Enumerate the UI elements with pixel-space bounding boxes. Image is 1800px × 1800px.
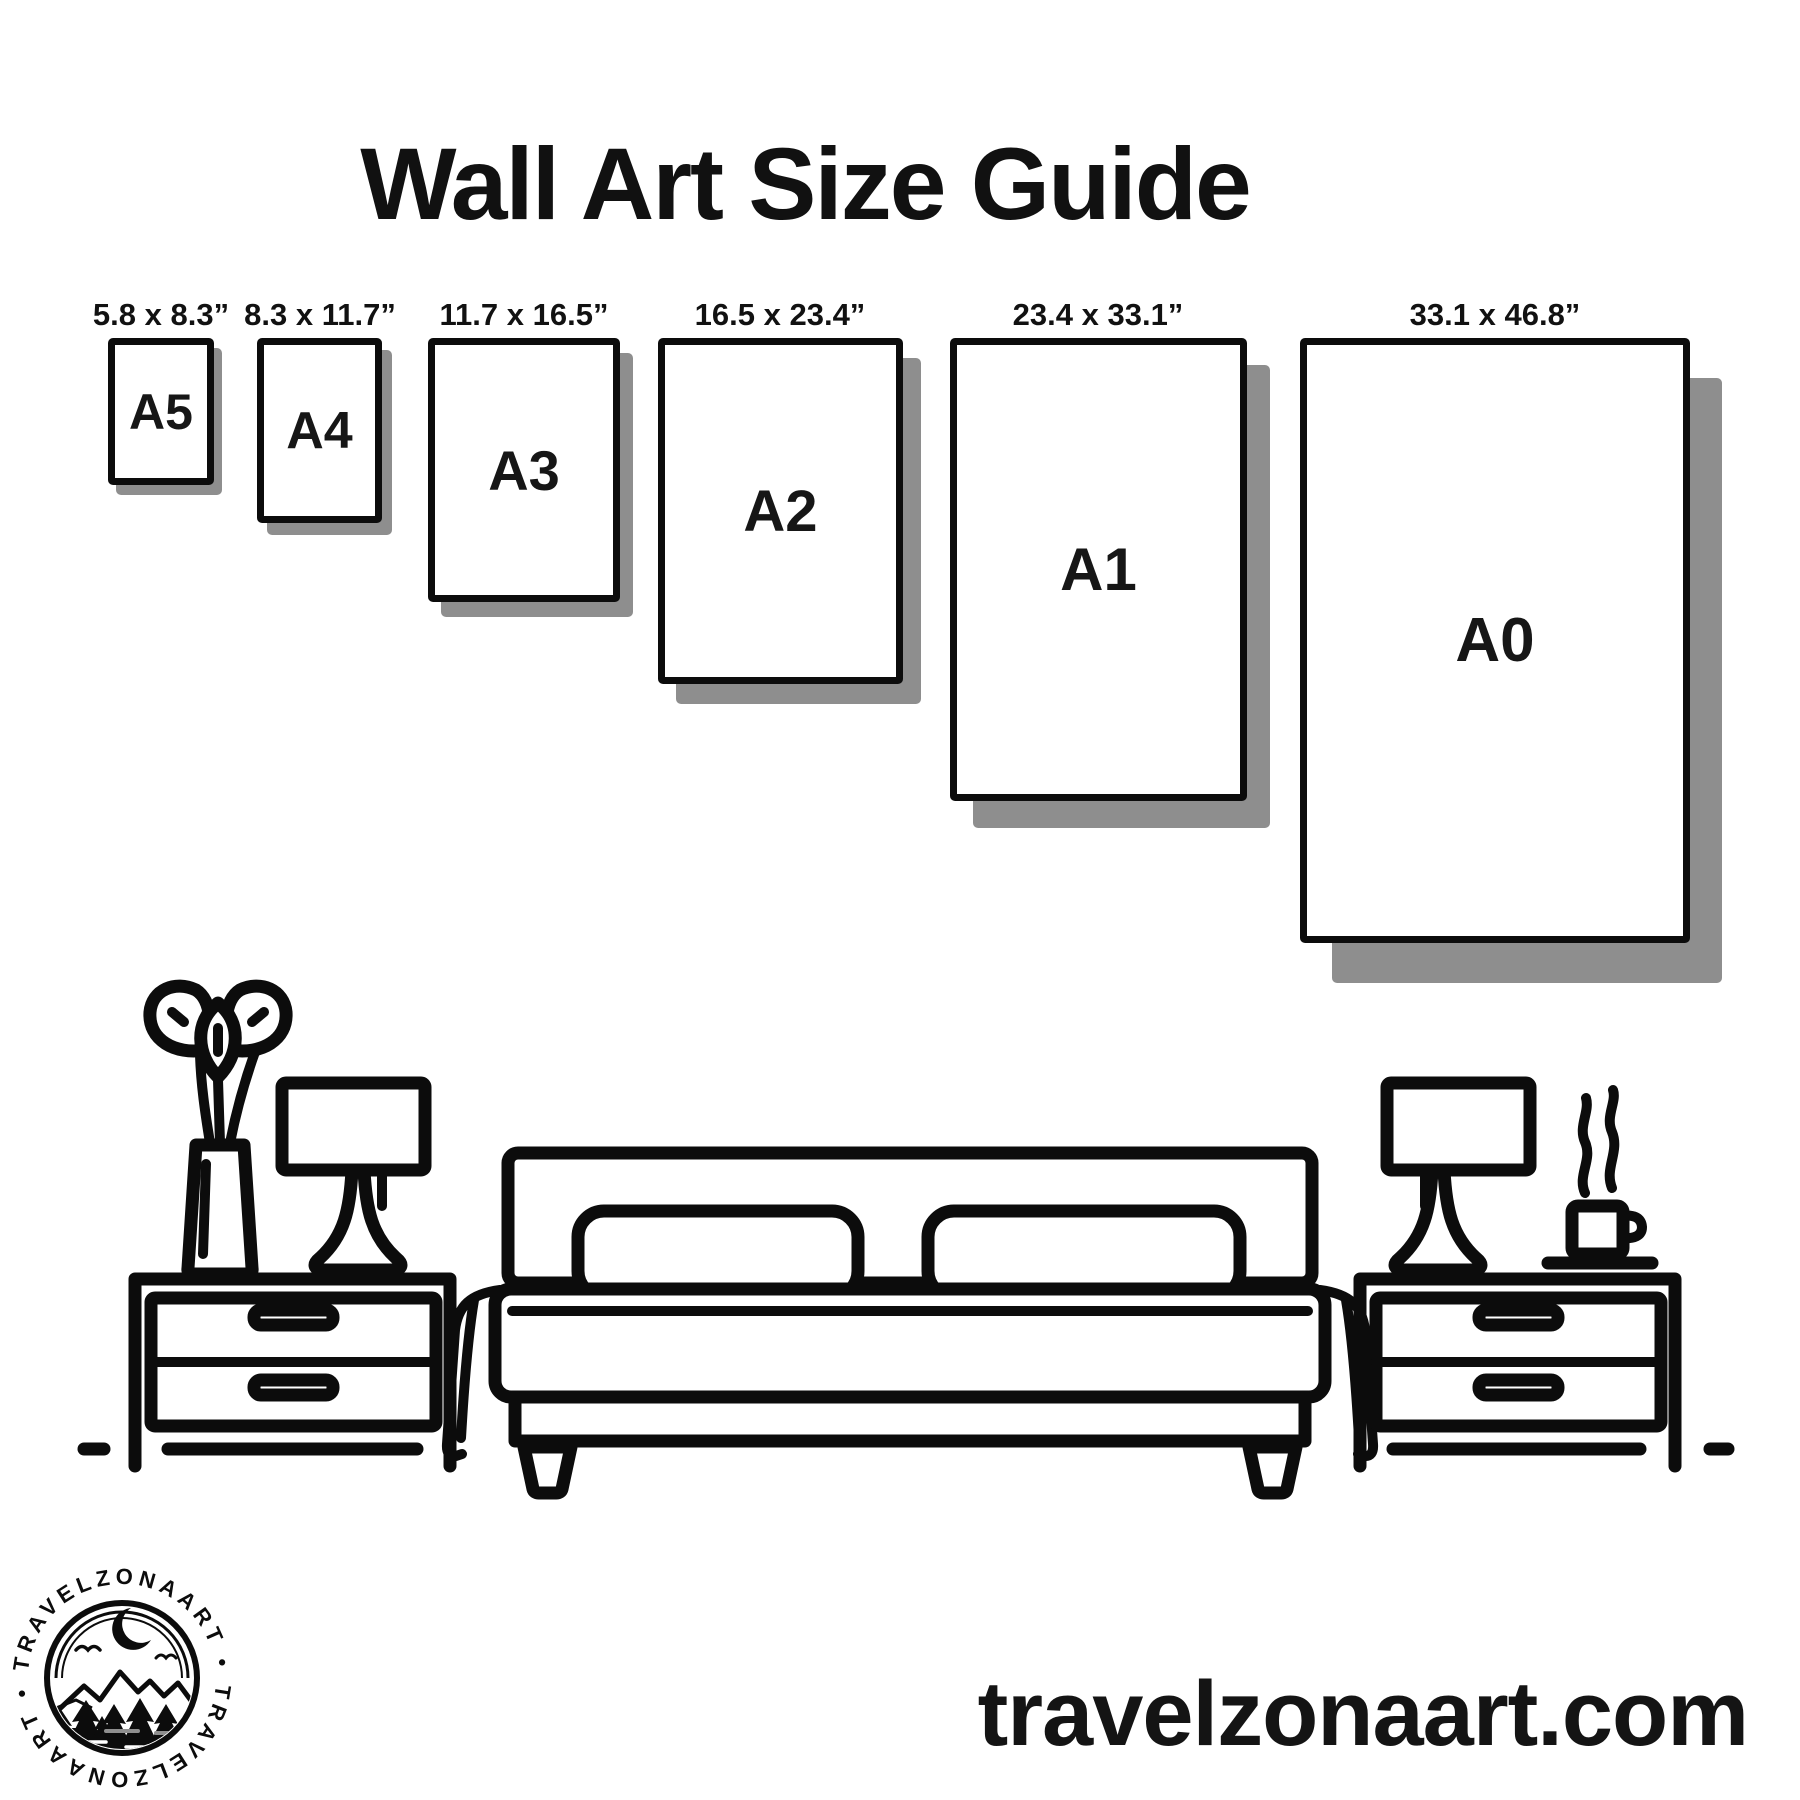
paper-a1-label: A1 (1060, 535, 1137, 604)
nightstand-icon (1360, 1279, 1675, 1466)
coffee-cup-icon (1548, 1090, 1652, 1263)
steam-icon (1583, 1098, 1588, 1193)
vase (188, 1145, 252, 1274)
paper-a3-label: A3 (488, 438, 560, 503)
plant-stem (218, 1080, 220, 1143)
drawer-handle (1479, 1380, 1558, 1395)
lamp-shade (282, 1083, 425, 1170)
bed-base (515, 1397, 1305, 1441)
drawer-handle (254, 1380, 333, 1395)
paper-a0-label: A0 (1455, 605, 1534, 676)
steam-icon (1610, 1090, 1615, 1188)
size-guide-poster: Wall Art Size Guide 5.8 x 8.3” 8.3 x 11.… (0, 0, 1800, 1800)
lamp-stem (1395, 1170, 1481, 1270)
table-lamp-icon (1387, 1083, 1530, 1270)
dimension-label-a1: 23.4 x 33.1” (973, 296, 1223, 334)
blanket-drape-left-line (461, 1300, 474, 1438)
cup-body (1572, 1206, 1623, 1254)
paper-a3: A3 (428, 338, 620, 602)
paper-a0: A0 (1300, 338, 1690, 943)
logo-badge-icon: TRAVELZONAART • TRAVELZONAART • (10, 1556, 238, 1792)
nightstand-icon (135, 1279, 450, 1466)
bedroom-scene (0, 900, 1800, 1520)
table-lamp-icon (282, 1083, 425, 1270)
lamp-stem (315, 1170, 401, 1270)
page-title: Wall Art Size Guide (0, 126, 1610, 243)
drawer-handle (254, 1310, 333, 1325)
dimension-label-a3: 11.7 x 16.5” (404, 296, 644, 334)
vase-line (203, 1164, 206, 1254)
paper-a5: A5 (108, 338, 214, 485)
paper-a5-label: A5 (129, 383, 193, 441)
paper-a4: A4 (257, 338, 382, 523)
bed-leg (1249, 1447, 1296, 1493)
paper-a1: A1 (950, 338, 1247, 801)
bed-leg (524, 1447, 571, 1493)
plant-vase-icon (150, 986, 286, 1274)
paper-a2: A2 (658, 338, 903, 684)
drawer-handle (1479, 1310, 1558, 1325)
paper-a4-label: A4 (286, 401, 352, 461)
bed-icon (447, 1153, 1373, 1493)
website-url: travelzonaart.com (978, 1662, 1748, 1767)
mattress (495, 1289, 1325, 1397)
dimension-label-a2: 16.5 x 23.4” (655, 296, 905, 334)
paper-a2-label: A2 (743, 478, 817, 545)
dimension-label-a0: 33.1 x 46.8” (1370, 296, 1620, 334)
lamp-shade (1387, 1083, 1530, 1170)
